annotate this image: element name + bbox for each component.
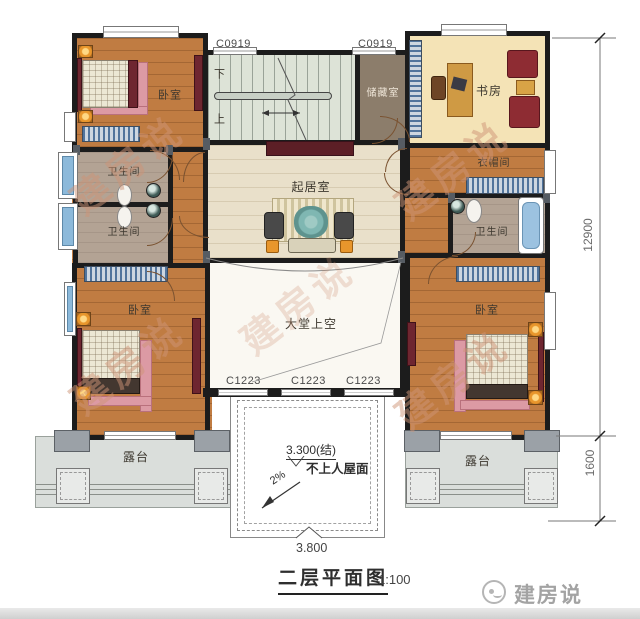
terrace-left-label: 露台	[123, 451, 149, 463]
window-bedroom-tl-top	[103, 26, 179, 38]
study-side-table	[516, 80, 535, 95]
side-stool	[266, 240, 279, 253]
terrace-pilaster	[194, 430, 230, 452]
nightstand-lamp	[528, 390, 543, 405]
stairs-up-label: 上	[214, 115, 226, 126]
terrace-column	[56, 468, 90, 504]
drawing-scale: 1:100	[378, 572, 411, 587]
window-label-c1223-1: C1223	[226, 375, 261, 387]
floor-plan-canvas: 下 上 储藏室 书房 卧室 卫生间 卫生间 起居室 衣帽间 卫生间 大堂上空	[0, 0, 640, 619]
study-bookshelf	[409, 40, 422, 138]
terrace-column	[524, 468, 558, 504]
dim-entry-width: 3.800	[296, 541, 327, 555]
wardrobe	[192, 318, 201, 394]
bedroom-br-label: 卧室	[475, 306, 499, 317]
nightstand-lamp	[78, 45, 93, 58]
bath-faucet	[146, 183, 161, 198]
window-cloak-right	[544, 150, 556, 194]
bath-sink	[117, 206, 132, 228]
column-block	[543, 193, 550, 203]
brand-logo-icon	[482, 580, 506, 604]
bathtub-water	[522, 202, 540, 249]
window-bedroom-bl-bottom	[104, 431, 176, 440]
window-bedroom-br-bottom	[440, 431, 512, 440]
bottom-border-strip	[0, 608, 640, 619]
armchair	[334, 212, 354, 239]
window-study-top	[441, 24, 507, 36]
window-label-c1223-2: C1223	[291, 375, 326, 387]
window-bedroom-tl-left	[64, 112, 76, 142]
storage-label: 储藏室	[367, 89, 400, 99]
study-chair	[431, 76, 446, 100]
dim-terrace-depth: 1600	[583, 439, 597, 487]
tv-cabinet	[266, 141, 354, 156]
column-block	[203, 251, 210, 263]
wardrobe	[194, 55, 203, 111]
stair-handrail	[214, 92, 332, 100]
armchair	[264, 212, 284, 239]
plant	[294, 206, 328, 238]
bath-right-label: 卫生间	[476, 228, 509, 238]
bath-left-bottom-label: 卫生间	[108, 228, 141, 238]
terrace-pilaster	[54, 430, 90, 452]
column-block	[203, 138, 210, 150]
window-label-c1223-3: C1223	[346, 375, 381, 387]
living-label: 起居室	[291, 181, 330, 193]
logo-face-curve	[493, 592, 502, 598]
study-sofa-bottom	[509, 96, 540, 128]
window-c1223-2	[281, 389, 331, 396]
brand-logo-text: 建房说	[514, 579, 583, 609]
roof-area-label: 不上人屋面	[306, 458, 369, 477]
wardrobe-band	[456, 266, 540, 282]
wardrobe	[407, 322, 416, 366]
window-label-c0919-right: C0919	[358, 38, 393, 50]
page-title: 二层平面图	[278, 563, 388, 595]
bath-faucet	[146, 203, 161, 218]
terrace-column	[194, 468, 228, 504]
column-block	[398, 251, 405, 263]
window-label-c0919-left: C0919	[216, 38, 251, 50]
bed	[82, 60, 130, 108]
window-glass	[67, 286, 73, 332]
nightstand-lamp	[76, 312, 91, 326]
terrace-column	[406, 468, 440, 504]
stairs-down-label: 下	[214, 70, 226, 81]
side-stool	[340, 240, 353, 253]
terrace-right-label: 露台	[465, 455, 491, 467]
dim-overall-height: 12900	[581, 205, 595, 265]
window-c1223-1	[218, 389, 268, 396]
terrace-pilaster	[524, 430, 560, 452]
study-label: 书房	[476, 85, 502, 97]
bath-sink	[466, 199, 482, 223]
study-sofa-top	[507, 50, 538, 78]
bed-foot	[128, 60, 138, 108]
nightstand-lamp	[528, 322, 543, 337]
carpet	[460, 400, 530, 410]
nightstand-lamp	[78, 110, 93, 123]
window-glass	[62, 207, 74, 246]
window-bedroom-br-right	[544, 292, 556, 350]
